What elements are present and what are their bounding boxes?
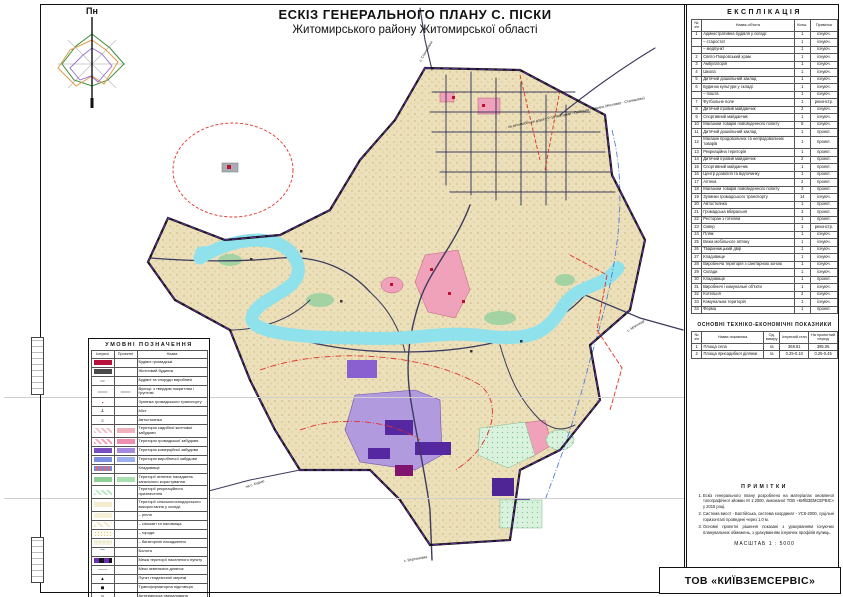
table-row: 8 Дитячий ігровий майданчик 2 існуюч. xyxy=(692,106,838,114)
table-row: 31 Виробничі і комунальні об'єкти 1 існу… xyxy=(692,284,838,292)
legend-item-name: Території рекреаційного призначення xyxy=(137,486,207,499)
legend-swatch-projected xyxy=(117,428,135,433)
note-item: Система висот - Балтійська, система коор… xyxy=(703,511,834,522)
legend-item-name: Автостоянка xyxy=(137,416,207,425)
table-row: 6 Будинок культури у складі: 1 існуюч. xyxy=(692,84,838,92)
legend-symbol-existing: ﹌ xyxy=(93,549,113,554)
legend-swatch-projected xyxy=(117,502,135,507)
legend-swatch-existing xyxy=(94,369,112,374)
table-row: 14 Дитячий ігровий майданчик 2 проект. xyxy=(692,156,838,164)
legend-swatch-existing xyxy=(94,457,112,462)
explication-col-name: Назва об'єкта xyxy=(702,20,795,32)
legend-panel: УМОВНІ ПОЗНАЧЕННЯ Існуючі Проектні Назва xyxy=(88,338,210,597)
legend-row: – рілля xyxy=(91,511,207,520)
legend-row: Території сільськогосподарського викорис… xyxy=(91,498,207,511)
legend-row: Територія виробничої забудови xyxy=(91,455,207,464)
legend-row: Території рекреаційного призначення xyxy=(91,486,207,499)
legend-col-projected: Проектні xyxy=(114,351,137,359)
table-row: 17 Аптека 2 проект. xyxy=(692,179,838,187)
legend-item-name: – рілля xyxy=(137,511,207,520)
legend-swatch-projected xyxy=(117,558,135,563)
legend-swatch-projected xyxy=(117,477,135,482)
legend-row: Будівлі громадські xyxy=(91,358,207,367)
margin-stamp xyxy=(31,537,44,583)
legend-col-name: Назва xyxy=(137,351,207,359)
table-row: 27 Кладовище 1 існуюч. xyxy=(692,254,838,262)
table-row: 30 Кладовище 1 проект. xyxy=(692,276,838,284)
table-row: – старостат 1 існуюч. xyxy=(692,39,838,47)
indicators-table: № з/п Назва показника Од. виміру Існуючи… xyxy=(691,331,838,359)
table-row: 5 Дитячий дошкільний заклад 1 існуюч. xyxy=(692,76,838,84)
plan-sheet: на автомобільну дорогу Р-18 Житомир - По… xyxy=(0,0,843,597)
table-row: 12 Магазин продовольчих та непродовольчи… xyxy=(692,136,838,148)
table-row: 9 Спортивний майданчик 1 існуюч. xyxy=(692,114,838,122)
legend-swatch-existing xyxy=(94,531,112,536)
margin-stamp xyxy=(31,337,44,395)
legend-swatch-projected xyxy=(117,522,135,527)
legend-row: ≡ Автостоянка xyxy=(91,416,207,425)
legend-row: – сіножаті та пасовища xyxy=(91,520,207,529)
table-row: 7 Футбольне поле 1 реконстр. xyxy=(692,99,838,107)
legend-item-name: Болота xyxy=(137,547,207,556)
legend-item-name: Трансформаторна підстанція xyxy=(137,583,207,592)
legend-swatch-existing xyxy=(94,466,112,471)
legend-col-existing: Існуючі xyxy=(91,351,114,359)
legend-swatch-existing xyxy=(94,490,112,495)
legend-swatch-projected xyxy=(117,360,135,365)
table-row: 2 Площа присадибної ділянки га 0.25-0.10… xyxy=(692,351,838,359)
legend-swatch-existing xyxy=(94,522,112,527)
legend-swatch-projected xyxy=(117,549,135,554)
legend-swatch-existing xyxy=(94,360,112,365)
legend-row: ▲ Пункт геодезичної мережі xyxy=(91,574,207,583)
legend-swatch-projected xyxy=(117,567,135,572)
legend-swatch-existing xyxy=(94,540,112,545)
legend-swatch-projected xyxy=(117,378,135,383)
legend-row: Територія громадської забудови xyxy=(91,437,207,446)
legend-symbol-existing: ▭ xyxy=(93,378,113,383)
legend-row: Кладовище xyxy=(91,464,207,473)
legend-item-name: Території зелених насаджень загального к… xyxy=(137,473,207,486)
table-row: 20 Автостоянка 1 проект. xyxy=(692,201,838,209)
table-row: 13 Рекреаційна територія 1 проект. xyxy=(692,149,838,157)
legend-swatch-projected xyxy=(117,466,135,471)
legend-swatch-projected xyxy=(117,369,135,374)
legend-row: Територія комерційної забудови xyxy=(91,446,207,455)
table-row: – пошта 1 існуюч. xyxy=(692,91,838,99)
notes-title: ПРИМІТКИ xyxy=(695,484,834,490)
legend-row: ◼ Трансформаторна підстанція xyxy=(91,583,207,592)
legend-swatch-existing xyxy=(94,428,112,433)
legend-swatch-projected xyxy=(117,418,135,423)
legend-symbol-existing: ╨ xyxy=(93,409,113,414)
legend-swatch-existing xyxy=(94,477,112,482)
table-row: 1 Площа села га 368.81 395.06 xyxy=(692,343,838,351)
table-row: 21 Громадська вбиральня 3 проект. xyxy=(692,209,838,217)
legend-swatch-projected xyxy=(117,576,135,581)
table-row: 11 Дитячий дошкільний заклад 1 проект. xyxy=(692,129,838,137)
table-row: 26 Тваринницький двір 1 існуюч. xyxy=(692,246,838,254)
legend-item-name: Територія виробничої забудови xyxy=(137,455,207,464)
note-item: Ескіз генерального плану розроблено на м… xyxy=(703,493,834,510)
legend-swatch-projected xyxy=(117,439,135,444)
legend-symbol-existing: ─── xyxy=(93,567,113,572)
table-row: 25 Вежа мобільного зв'язку 1 існуюч. xyxy=(692,239,838,247)
table-row: 34 Ферма 1 проект. xyxy=(692,306,838,314)
legend-item-name: Будівлі та споруди виробничі xyxy=(137,376,207,385)
legend-item-name: Територія громадської забудови xyxy=(137,437,207,446)
legend-row: ╨ Міст xyxy=(91,407,207,416)
legend-swatch-projected xyxy=(117,540,135,545)
legend-symbol-projected: ═══ xyxy=(116,389,136,394)
wind-rose: Пн xyxy=(46,4,138,108)
legend-symbol-existing: ▲ xyxy=(93,576,113,581)
legend-symbol-existing: ◼ xyxy=(93,585,113,590)
table-row: 18 Магазини товарів повсякденного попиту… xyxy=(692,186,838,194)
legend-item-name: – багаторічні насадження xyxy=(137,538,207,547)
legend-title: УМОВНІ ПОЗНАЧЕННЯ xyxy=(89,342,209,348)
legend-row: Межа території населеного пункту xyxy=(91,556,207,565)
explication-col-qty: Кільк. xyxy=(794,20,810,32)
explication-col-note: Примітка xyxy=(810,20,837,32)
legend-swatch-projected xyxy=(117,513,135,518)
legend-swatch-projected xyxy=(117,457,135,462)
north-label: Пн xyxy=(86,6,98,16)
table-row: 33 Комунальна територія 1 існуюч. xyxy=(692,299,838,307)
legend-item-name: Території сільськогосподарського викорис… xyxy=(137,498,207,511)
legend-swatch-projected xyxy=(117,448,135,453)
table-row: 15 Спортивний майданчик 1 проект. xyxy=(692,164,838,172)
legend-row: – багаторічні насадження xyxy=(91,538,207,547)
legend-item-name: Пункт геодезичної мережі xyxy=(137,574,207,583)
legend-table: Існуючі Проектні Назва xyxy=(91,350,208,597)
legend-swatch-existing xyxy=(94,502,112,507)
legend-symbol-existing: ≡ xyxy=(93,418,113,423)
notes-list: Ескіз генерального плану розроблено на м… xyxy=(695,493,834,536)
table-row: 3 Амбулаторія 1 існуюч. xyxy=(692,61,838,69)
table-row: 28 Виробнича територія з санітарною зоно… xyxy=(692,261,838,269)
legend-item-name: Межа території населеного пункту xyxy=(137,556,207,565)
legend-swatch-projected xyxy=(117,409,135,414)
table-row: – медпункт 1 існуюч. xyxy=(692,46,838,54)
map-scale: МАСШТАБ 1 : 5000 xyxy=(695,541,834,547)
explication-table: № з/п Назва об'єкта Кільк. Примітка 1 Ад… xyxy=(691,19,838,314)
legend-row: – городи xyxy=(91,529,207,538)
notes-block: ПРИМІТКИ Ескіз генерального плану розроб… xyxy=(695,484,834,548)
legend-row: Території зелених насаджень загального к… xyxy=(91,473,207,486)
table-row: 19 Зупинки громадського транспорту 14 іс… xyxy=(692,194,838,202)
table-row: 10 Магазини товарів повсякденного попиту… xyxy=(692,121,838,129)
legend-row: ▪ Зупинка громадського транспорту xyxy=(91,398,207,407)
legend-swatch-existing xyxy=(94,513,112,518)
legend-item-name: – городи xyxy=(137,529,207,538)
title-line1: ЕСКІЗ ГЕНЕРАЛЬНОГО ПЛАНУ С. ПІСКИ xyxy=(180,7,650,22)
legend-row: ﹌ Болота xyxy=(91,547,207,556)
legend-item-name: Межі земельних ділянок xyxy=(137,565,207,574)
legend-swatch-projected xyxy=(117,531,135,536)
legend-row: ⊙ Артезіанська свердловина xyxy=(91,592,207,597)
legend-row: Територія садибної житлової забудови xyxy=(91,425,207,438)
legend-row: ═══ ═══ Вулиці: з твердим покриттям / ґр… xyxy=(91,385,207,398)
table-row: 24 Пляж 1 існуюч. xyxy=(692,231,838,239)
legend-swatch-projected xyxy=(117,585,135,590)
table-row: 1 Адміністративна будівля у складі: 1 іс… xyxy=(692,31,838,39)
indicators-title: ОСНОВНІ ТЕХНІКО-ЕКОНОМІЧНІ ПОКАЗНИКИ xyxy=(689,322,840,328)
legend-item-name: Будівлі громадські xyxy=(137,358,207,367)
right-panel: ЕКСПЛІКАЦІЯ № з/п Назва об'єкта Кільк. П… xyxy=(684,4,842,593)
legend-row: ─── Межі земельних ділянок xyxy=(91,565,207,574)
legend-item-name: Кладовище xyxy=(137,464,207,473)
cemetery-object xyxy=(222,163,238,172)
explication-title: ЕКСПЛІКАЦІЯ xyxy=(687,9,842,16)
legend-symbol-existing: ▪ xyxy=(93,400,113,405)
legend-swatch-existing xyxy=(94,439,112,444)
page-title: ЕСКІЗ ГЕНЕРАЛЬНОГО ПЛАНУ С. ПІСКИ Житоми… xyxy=(180,7,650,36)
legend-item-name: Територія комерційної забудови xyxy=(137,446,207,455)
legend-item-name: Вулиці: з твердим покриттям / ґрунтові xyxy=(137,385,207,398)
legend-item-name: Зупинка громадського транспорту xyxy=(137,398,207,407)
table-row: 23 Сквер 1 реконстр. xyxy=(692,224,838,232)
map-label-village-east: с. Млинище xyxy=(626,319,645,333)
legend-item-name: Артезіанська свердловина xyxy=(137,592,207,597)
legend-swatch-existing xyxy=(94,448,112,453)
title-line2: Житомирського району Житомирської област… xyxy=(180,24,650,36)
legend-item-name: Міст xyxy=(137,407,207,416)
legend-swatch-existing xyxy=(94,558,112,563)
legend-swatch-projected xyxy=(117,400,135,405)
table-row: 16 Центр дозвілля та відпочинку 1 проект… xyxy=(692,171,838,179)
legend-row: Житловий будинок xyxy=(91,367,207,376)
company-title-block: ТОВ «КИЇВЗЕМСЕРВІС» xyxy=(659,567,841,594)
table-row: 22 Ресторан з готелем 1 проект. xyxy=(692,216,838,224)
explication-col-num: № з/п xyxy=(692,20,702,32)
table-row: 2 Свято-Покровський храм 1 існуюч. xyxy=(692,54,838,62)
legend-item-name: Територія садибної житлової забудови xyxy=(137,425,207,438)
north-arrow-base xyxy=(91,98,94,108)
note-item: Основні проектні рішення показані з урах… xyxy=(703,524,834,535)
map-label-village-south: с. Вертокиївка xyxy=(403,555,427,563)
table-row: 4 Школа 1 існуюч. xyxy=(692,69,838,77)
legend-swatch-projected xyxy=(117,490,135,495)
table-row: 32 Котельня 2 існуюч. xyxy=(692,291,838,299)
table-row: 29 Склади 1 існуюч. xyxy=(692,269,838,277)
legend-row: ▭ Будівлі та споруди виробничі xyxy=(91,376,207,385)
legend-item-name: Житловий будинок xyxy=(137,367,207,376)
legend-symbol-existing: ═══ xyxy=(93,389,113,394)
company-name: ТОВ «КИЇВЗЕМСЕРВІС» xyxy=(685,575,815,587)
legend-item-name: – сіножаті та пасовища xyxy=(137,520,207,529)
